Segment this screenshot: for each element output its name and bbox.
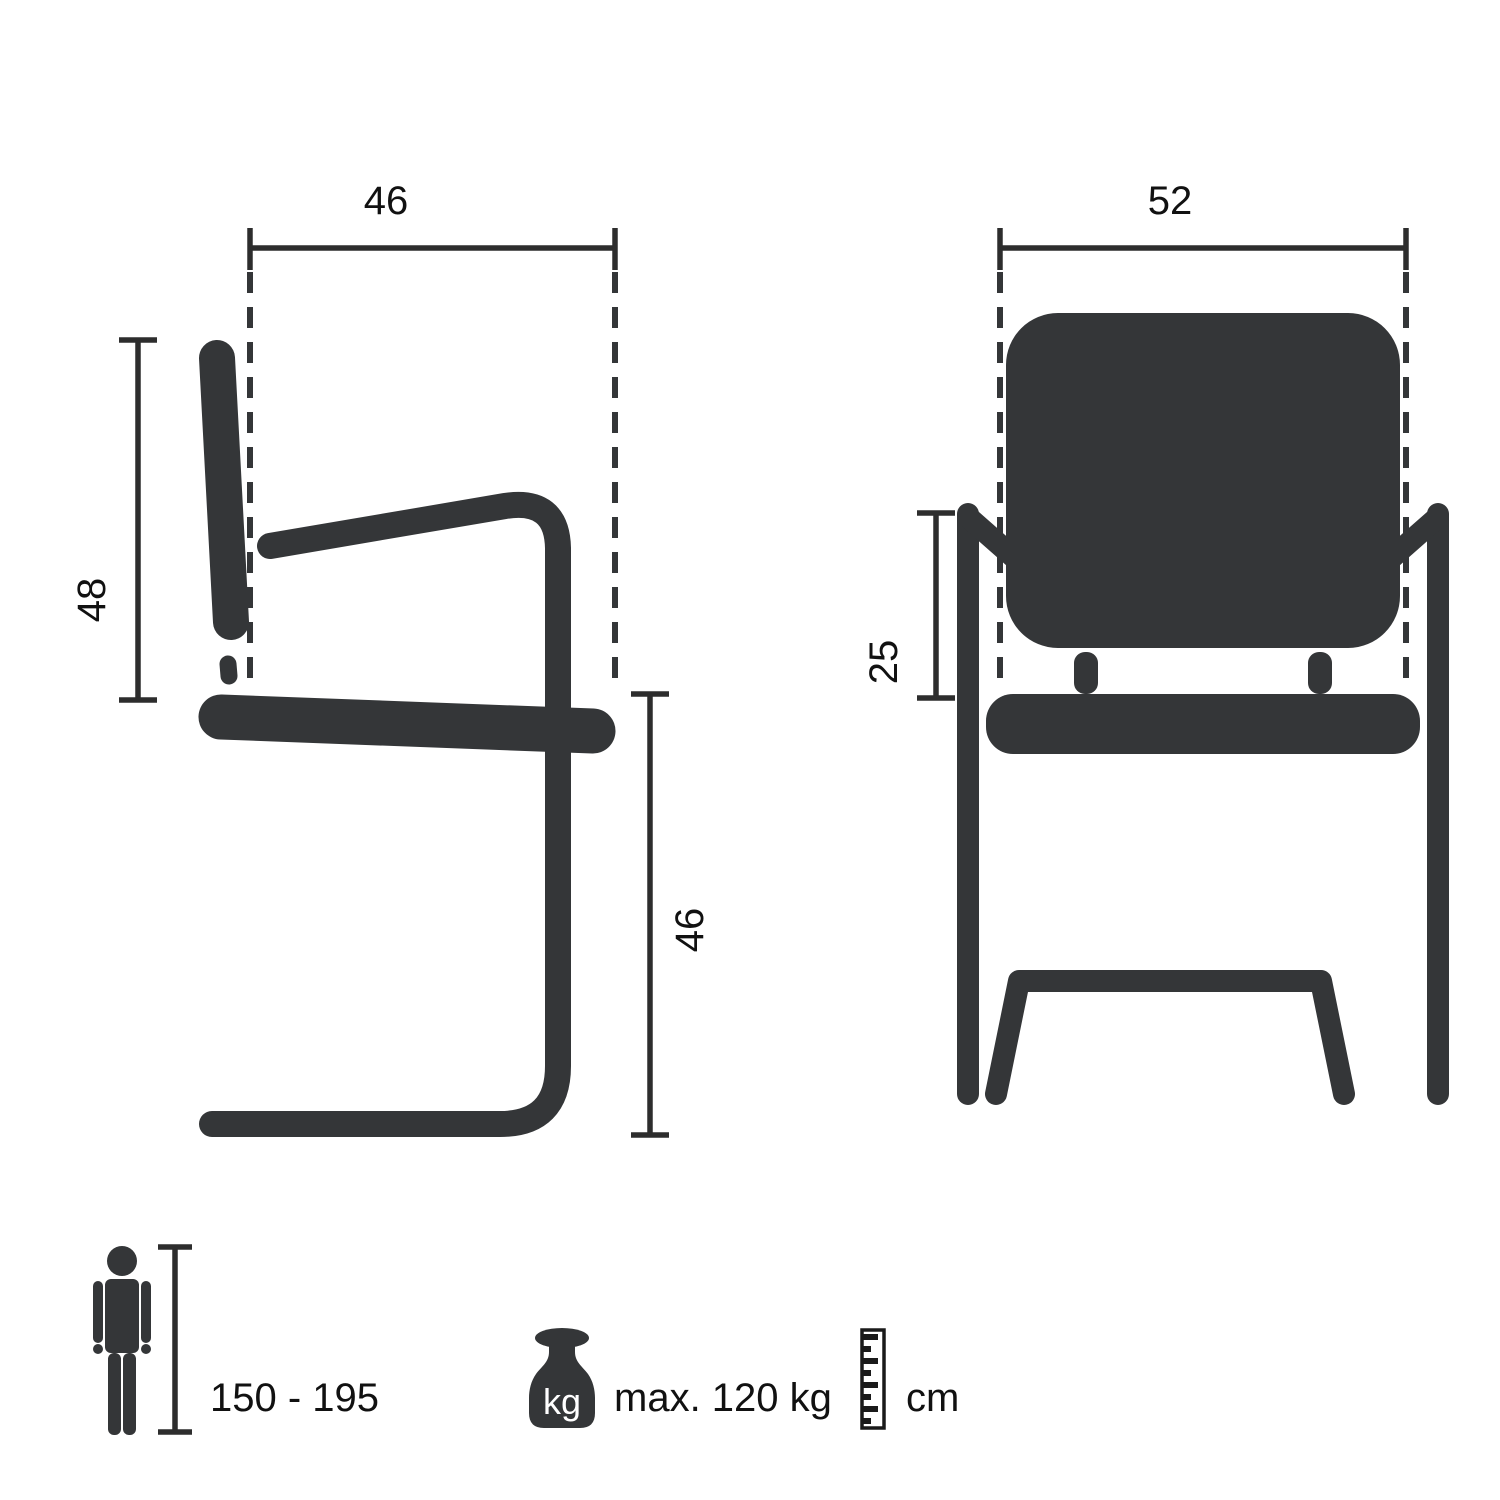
person-head — [107, 1246, 137, 1276]
side-backrest-connector — [228, 664, 229, 676]
max-load-item: kg max. 120 kg — [529, 1328, 832, 1428]
ruler-icon — [862, 1330, 884, 1428]
max-load-label: max. 120 kg — [614, 1376, 832, 1420]
unit-label: cm — [906, 1376, 959, 1420]
weight-icon: kg — [529, 1328, 595, 1428]
side-seat — [221, 717, 593, 731]
person-leg-right — [123, 1353, 136, 1435]
person-height-label: 150 - 195 — [210, 1376, 379, 1420]
armrest-height-dimension: 25 — [862, 513, 955, 698]
front-backrest-connector-right — [1308, 652, 1332, 694]
chair-front-silhouette — [968, 313, 1438, 1094]
legend-row: 150 - 195 kg max. 120 kg — [93, 1246, 959, 1435]
seat-height-dimension: 46 — [631, 694, 712, 1135]
front-backrest — [1006, 313, 1400, 648]
person-height-item: 150 - 195 — [93, 1246, 379, 1435]
dim-label-seat-depth: 46 — [364, 179, 409, 223]
diagram-svg: 46 48 46 — [0, 0, 1500, 1500]
front-view: 52 25 — [862, 179, 1438, 1094]
front-cantilever-base — [996, 981, 1344, 1094]
person-arm-right — [141, 1281, 151, 1343]
dimension-diagram: 46 48 46 — [0, 0, 1500, 1500]
backrest-height-dimension: 48 — [70, 340, 157, 700]
person-hand-left — [93, 1344, 103, 1354]
chair-side-silhouette — [212, 358, 593, 1124]
side-cantilever-frame — [212, 505, 558, 1124]
person-body — [105, 1279, 139, 1353]
dim-label-armrest-height: 25 — [862, 640, 906, 685]
side-view: 46 48 46 — [70, 179, 712, 1135]
person-leg-left — [108, 1353, 121, 1435]
unit-item: cm — [862, 1330, 959, 1428]
front-backrest-connector-left — [1074, 652, 1098, 694]
front-seat — [986, 694, 1420, 754]
dim-label-seat-width: 52 — [1148, 179, 1193, 223]
dim-label-seat-height: 46 — [668, 908, 712, 953]
person-icon — [93, 1246, 151, 1435]
kg-label: kg — [543, 1381, 581, 1422]
person-arm-left — [93, 1281, 103, 1343]
ruler-outline — [862, 1330, 884, 1428]
side-backrest — [217, 358, 231, 622]
dim-label-backrest-height: 48 — [70, 578, 114, 623]
person-hand-right — [141, 1344, 151, 1354]
